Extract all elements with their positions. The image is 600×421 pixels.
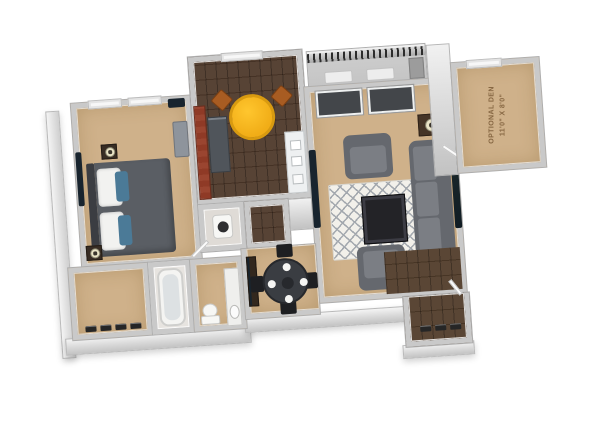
shoes	[130, 322, 141, 329]
bedroom-window	[88, 98, 123, 109]
refrigerator	[207, 116, 231, 173]
kitchen-chair	[270, 85, 293, 108]
den-label-dimensions: 11'0" X 8'0"	[499, 94, 510, 136]
balcony-chair	[366, 67, 395, 81]
sink-basin	[291, 156, 303, 167]
bed-accent-pillow	[118, 215, 133, 246]
water-heater	[212, 214, 234, 239]
wall-mirror	[168, 98, 186, 108]
utility-unit	[408, 57, 424, 79]
table-lamp	[90, 248, 101, 259]
table-lamp	[105, 147, 116, 158]
bathtub-basin	[162, 274, 181, 321]
den-label: OPTIONAL DEN 11'0" X 8'0"	[449, 76, 549, 154]
living-window-pane	[367, 85, 415, 114]
balcony-chair	[324, 70, 353, 84]
bed	[86, 158, 176, 258]
nightstand	[86, 245, 103, 261]
den-label-name: OPTIONAL DEN	[488, 86, 499, 144]
entry-closet	[403, 292, 472, 346]
nightstand	[101, 144, 118, 160]
vanity-sink	[229, 304, 240, 319]
hallway-wood-floor	[244, 199, 291, 249]
cooktop	[292, 174, 304, 185]
place-setting	[285, 295, 294, 304]
place-setting	[299, 278, 308, 287]
floor-plan: OPTIONAL DEN 11'0" X 8'0"	[0, 0, 600, 421]
floor-plan-canvas: OPTIONAL DEN 11'0" X 8'0"	[0, 0, 600, 401]
toilet-tank	[201, 315, 221, 325]
kitchen-table	[228, 93, 277, 142]
shoes	[450, 323, 461, 330]
place-setting	[268, 280, 277, 289]
room-kitchen	[188, 50, 312, 206]
water-heater-lid	[217, 221, 229, 233]
balcony-railing	[307, 44, 425, 63]
bedroom-wall-tv	[75, 152, 85, 206]
armchair	[343, 133, 394, 180]
kitchen-window	[221, 50, 264, 62]
table-pedestal	[281, 277, 294, 290]
shoes	[85, 326, 96, 333]
room-bedroom	[71, 95, 202, 269]
shoes	[435, 324, 446, 331]
den-window	[466, 58, 503, 69]
vanity-counter	[224, 267, 243, 326]
wall-segment	[288, 197, 314, 231]
bed-accent-pillow	[115, 171, 130, 202]
coffee-table	[361, 194, 408, 245]
dining-table	[261, 257, 310, 306]
room-den: OPTIONAL DEN 11'0" X 8'0"	[451, 57, 546, 173]
living-window-pane	[315, 88, 363, 117]
shoes	[420, 325, 431, 332]
entry-wood-floor	[384, 247, 463, 294]
bedroom-desk	[172, 121, 189, 158]
shoes	[100, 324, 111, 331]
room-bathroom-tub	[148, 260, 195, 335]
sink-basin	[290, 140, 302, 151]
room-closet	[68, 263, 153, 340]
room-dining	[241, 244, 320, 319]
place-setting	[282, 263, 291, 272]
dining-chair	[276, 244, 293, 258]
room-bathroom-vanity	[190, 256, 247, 331]
bedroom-window	[127, 95, 162, 106]
kitchen-counter	[284, 131, 308, 194]
bathtub	[156, 267, 186, 327]
shoes	[115, 323, 126, 330]
